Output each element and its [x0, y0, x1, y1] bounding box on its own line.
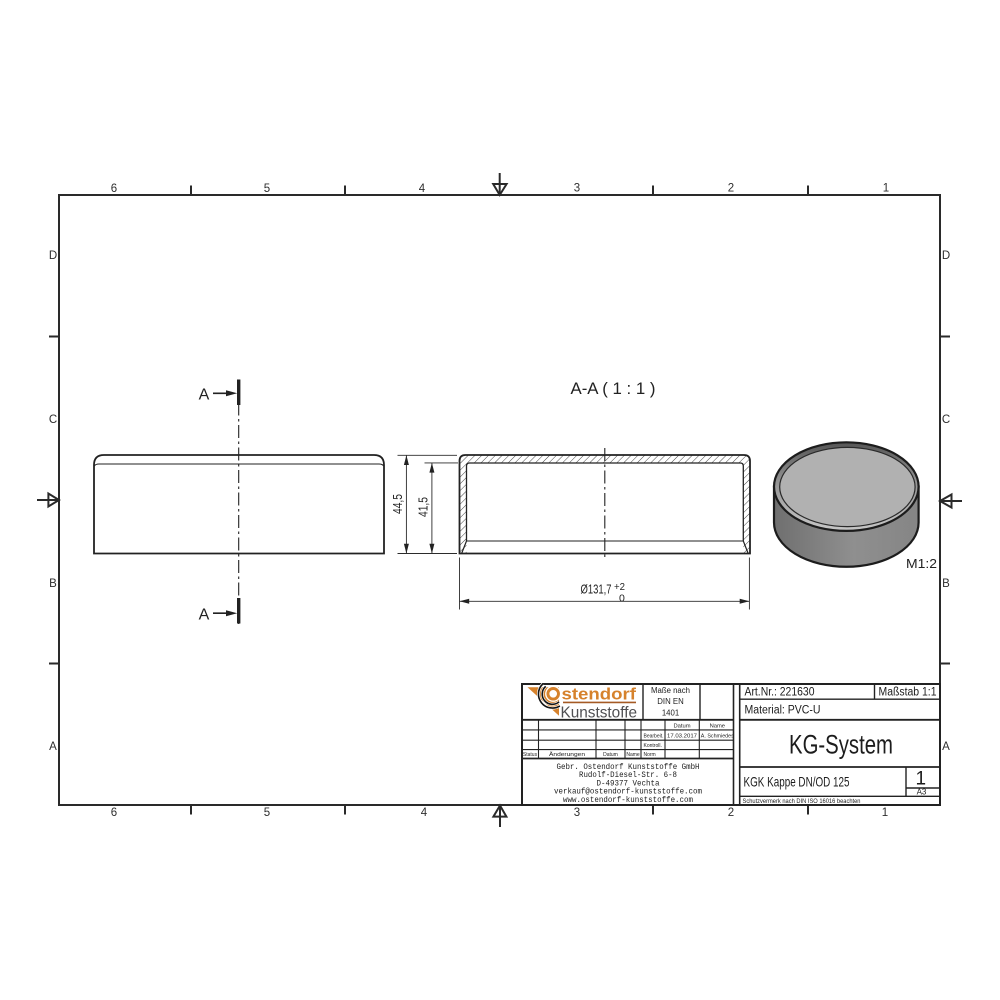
- svg-text:1: 1: [916, 769, 927, 790]
- svg-text:C: C: [49, 414, 57, 426]
- svg-text:Kontroll.: Kontroll.: [644, 743, 662, 749]
- svg-text:0: 0: [619, 593, 625, 605]
- svg-text:A: A: [942, 741, 950, 753]
- svg-text:M1:2: M1:2: [906, 557, 937, 571]
- svg-text:1: 1: [883, 183, 889, 195]
- svg-text:6: 6: [111, 183, 117, 195]
- svg-text:2: 2: [728, 183, 734, 195]
- svg-text:Datum: Datum: [673, 724, 690, 730]
- svg-text:DIN EN: DIN EN: [657, 697, 683, 706]
- svg-text:4: 4: [419, 183, 426, 195]
- svg-text:17.03.2017: 17.03.2017: [667, 733, 697, 739]
- svg-text:Name: Name: [710, 724, 725, 730]
- svg-text:Art.Nr.: 221630: Art.Nr.: 221630: [745, 687, 815, 699]
- svg-text:A: A: [199, 606, 210, 623]
- svg-text:D: D: [942, 250, 950, 262]
- svg-text:stendorf: stendorf: [562, 686, 637, 704]
- svg-text:Maßstab 1:1: Maßstab 1:1: [879, 687, 937, 699]
- svg-text:5: 5: [264, 807, 270, 819]
- svg-text:Kunststoffe: Kunststoffe: [561, 704, 638, 721]
- svg-text:C: C: [942, 414, 950, 426]
- svg-text:3: 3: [574, 183, 580, 195]
- svg-text:3: 3: [574, 807, 580, 819]
- svg-text:KG-System: KG-System: [789, 730, 893, 760]
- svg-text:Änderungen: Änderungen: [549, 751, 585, 758]
- svg-text:Material: PVC-U: Material: PVC-U: [745, 705, 821, 717]
- svg-text:+2: +2: [614, 581, 625, 593]
- svg-text:Status: Status: [523, 752, 538, 758]
- svg-text:1401: 1401: [662, 709, 679, 718]
- svg-text:A3: A3: [917, 788, 927, 797]
- svg-text:Datum: Datum: [603, 752, 618, 758]
- svg-text:B: B: [49, 578, 57, 590]
- svg-text:Norm: Norm: [644, 752, 656, 758]
- svg-text:A: A: [49, 741, 57, 753]
- svg-text:Name: Name: [626, 752, 640, 758]
- svg-text:Ø131,7: Ø131,7: [581, 582, 612, 597]
- svg-text:Maße nach: Maße nach: [651, 686, 690, 695]
- svg-text:4: 4: [421, 807, 428, 819]
- svg-text:www.ostendorf-kunststoffe.com: www.ostendorf-kunststoffe.com: [563, 796, 693, 805]
- svg-text:6: 6: [111, 807, 117, 819]
- svg-text:44,5: 44,5: [391, 494, 405, 514]
- svg-text:Bearbeit.: Bearbeit.: [644, 733, 664, 739]
- svg-text:D: D: [49, 250, 57, 262]
- svg-text:5: 5: [264, 183, 270, 195]
- svg-text:A-A ( 1 : 1 ): A-A ( 1 : 1 ): [571, 379, 656, 398]
- svg-text:B: B: [942, 578, 950, 590]
- svg-text:Schutzvermerk nach DIN ISO 160: Schutzvermerk nach DIN ISO 16016 beachte…: [743, 799, 861, 805]
- svg-text:KGK Kappe DN/OD 125: KGK Kappe DN/OD 125: [744, 774, 850, 790]
- svg-text:2: 2: [728, 807, 734, 819]
- svg-text:A: A: [199, 387, 210, 404]
- svg-text:1: 1: [882, 807, 888, 819]
- svg-text:41,5: 41,5: [417, 497, 431, 517]
- svg-text:A. Schmiedes: A. Schmiedes: [701, 733, 734, 739]
